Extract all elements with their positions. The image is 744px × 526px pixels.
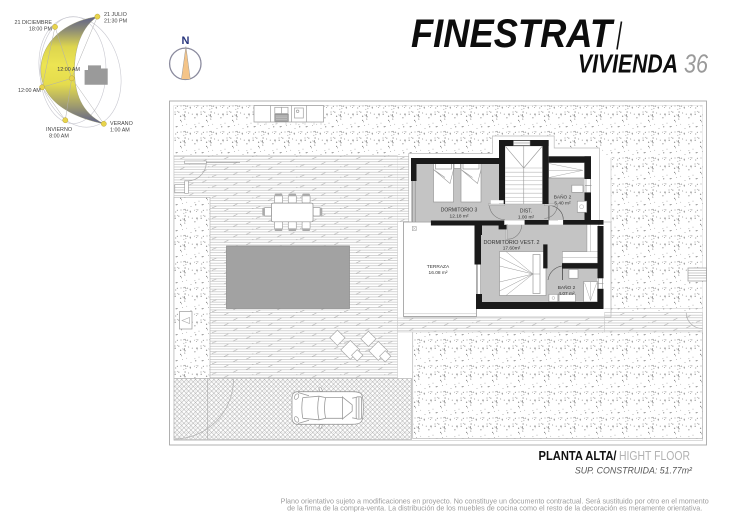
- svg-text:DORMITORIO VEST. 2: DORMITORIO VEST. 2: [484, 240, 540, 246]
- svg-text:BAÑO 2: BAÑO 2: [554, 194, 572, 201]
- svg-text:BAÑO 2: BAÑO 2: [558, 284, 576, 291]
- svg-text:TERRAZA: TERRAZA: [427, 264, 450, 270]
- svg-text:17.60m²: 17.60m²: [503, 246, 521, 252]
- svg-text:4.07 m²: 4.07 m²: [558, 291, 575, 297]
- svg-text:36: 36: [684, 50, 709, 78]
- svg-text:18:00 PM: 18:00 PM: [29, 27, 53, 33]
- svg-text:de la firma de la compra-venta: de la firma de la compra-venta. La distr…: [287, 504, 702, 512]
- svg-text:1:00 AM: 1:00 AM: [110, 128, 130, 134]
- svg-text:21:30 PM: 21:30 PM: [104, 19, 128, 25]
- svg-text:VIVIENDA: VIVIENDA: [578, 50, 678, 78]
- svg-text:16.08 m²: 16.08 m²: [429, 270, 448, 276]
- svg-text:FINESTRAT: FINESTRAT: [411, 12, 615, 56]
- svg-text:21 DICIEMBRE: 21 DICIEMBRE: [15, 20, 53, 26]
- svg-text:21 JULIO: 21 JULIO: [104, 12, 127, 18]
- svg-text:PLANTA ALTA/: PLANTA ALTA/: [539, 449, 617, 463]
- svg-text:12.18 m²: 12.18 m²: [450, 214, 469, 220]
- svg-text:N: N: [182, 35, 190, 47]
- svg-text:12:00 AM: 12:00 AM: [57, 67, 80, 73]
- svg-text:DORMITORIO 3: DORMITORIO 3: [441, 208, 478, 214]
- svg-text:8:00 AM: 8:00 AM: [49, 134, 69, 140]
- svg-text:1.00 m²: 1.00 m²: [518, 215, 535, 221]
- svg-text:5.40 m²: 5.40 m²: [554, 200, 571, 206]
- svg-text:DIST.: DIST.: [520, 209, 532, 215]
- svg-text:SUP. CONSTRUIDA: 51.77m²: SUP. CONSTRUIDA: 51.77m²: [575, 465, 693, 475]
- svg-text:12:00 AM: 12:00 AM: [18, 88, 41, 94]
- svg-text:INVIERNO: INVIERNO: [46, 127, 72, 133]
- svg-text:HIGHT FLOOR: HIGHT FLOOR: [619, 449, 690, 463]
- svg-text:VERANO: VERANO: [110, 121, 133, 127]
